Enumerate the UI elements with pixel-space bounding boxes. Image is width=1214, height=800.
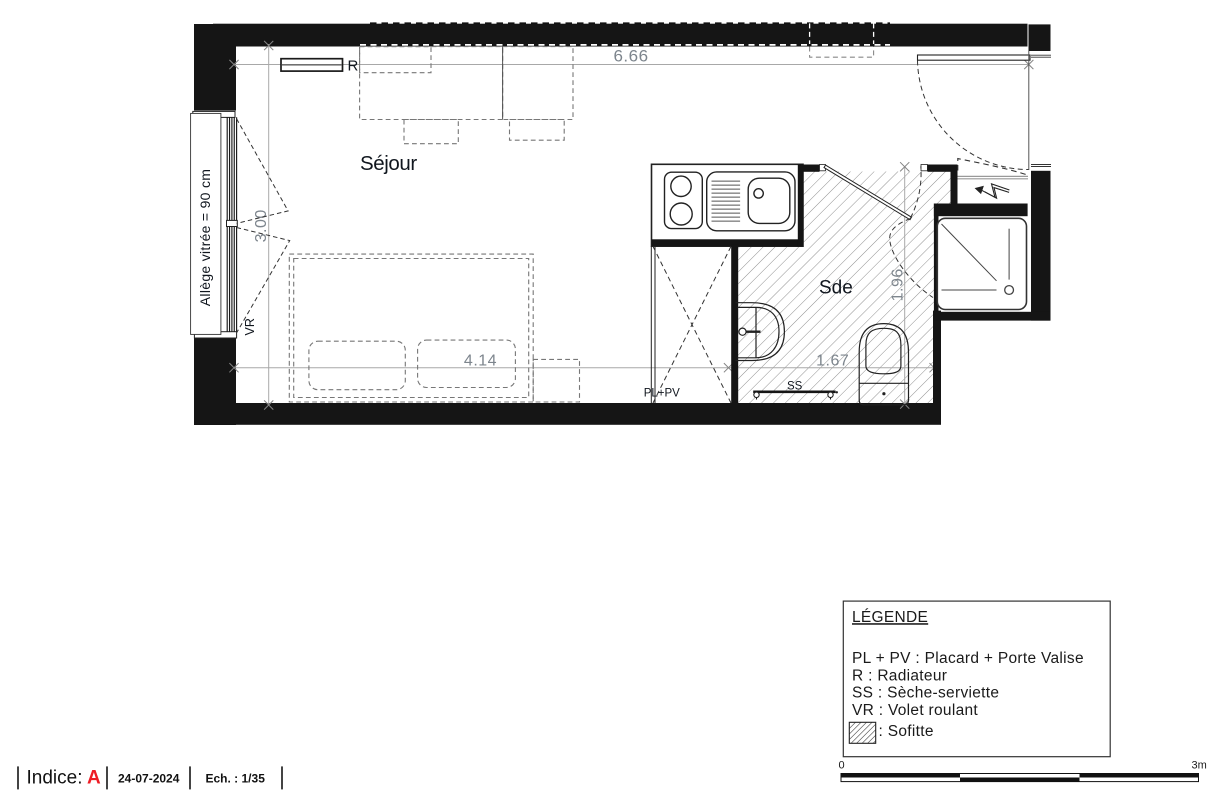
svg-text:4.14: 4.14 — [464, 352, 497, 369]
svg-text:Allège vitrée = 90 cm: Allège vitrée = 90 cm — [197, 169, 213, 306]
svg-text:24-07-2024: 24-07-2024 — [118, 772, 180, 786]
svg-text:1.67: 1.67 — [816, 352, 849, 369]
svg-text:Séjour: Séjour — [360, 152, 417, 175]
svg-text:Ech. : 1/35: Ech. : 1/35 — [206, 772, 266, 786]
svg-text:SS: SS — [787, 381, 803, 393]
svg-text:R : Radiateur: R : Radiateur — [852, 667, 947, 684]
svg-text:Sde: Sde — [819, 278, 853, 299]
svg-text:6.66: 6.66 — [613, 46, 648, 65]
svg-text:LÉGENDE: LÉGENDE — [852, 609, 928, 626]
svg-text:: Sofitte: : Sofitte — [879, 723, 934, 740]
svg-text:VR: VR — [243, 318, 257, 335]
svg-text:3.00: 3.00 — [253, 209, 270, 242]
svg-text:PL + PV : Placard + Porte Vali: PL + PV : Placard + Porte Valise — [852, 650, 1084, 667]
svg-text:0: 0 — [839, 760, 845, 772]
svg-text:A: A — [87, 768, 101, 789]
svg-text:3m: 3m — [1192, 760, 1207, 772]
svg-text:1.96: 1.96 — [890, 268, 907, 301]
svg-text:R: R — [348, 58, 359, 75]
svg-text:PL+PV: PL+PV — [644, 388, 680, 400]
svg-text:Indice:: Indice: — [27, 768, 83, 789]
svg-text:SS : Sèche-serviette: SS : Sèche-serviette — [852, 685, 999, 702]
svg-text:VR : Volet roulant: VR : Volet roulant — [852, 702, 978, 719]
